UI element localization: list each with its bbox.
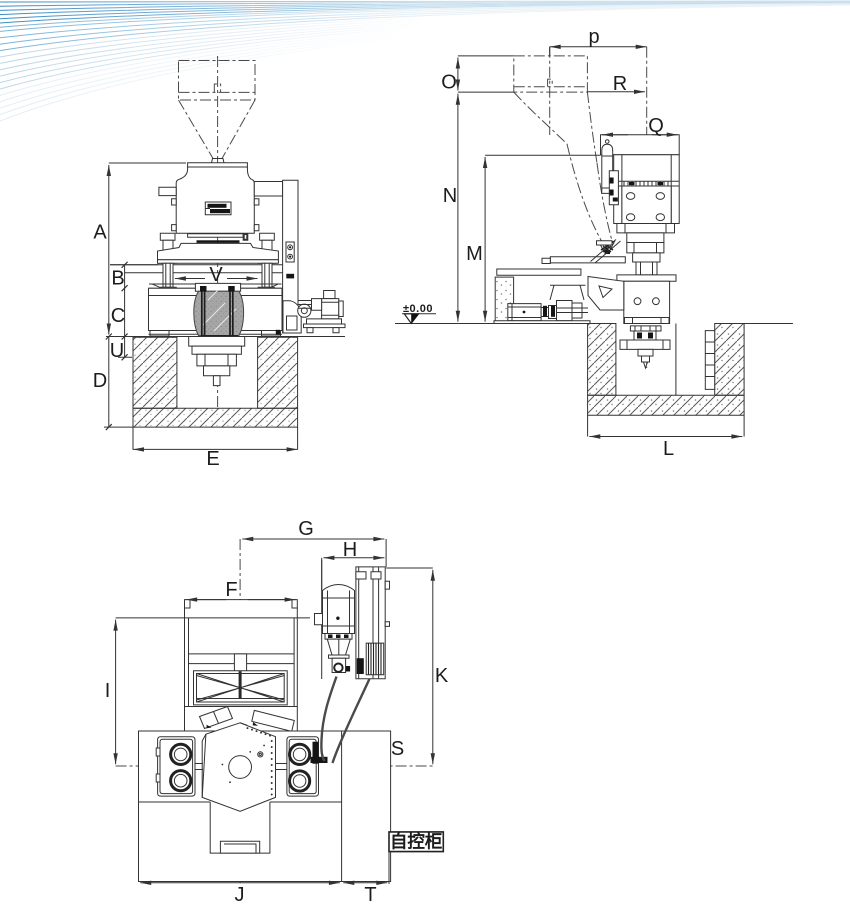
svg-text:E: E bbox=[206, 448, 219, 470]
svg-text:U: U bbox=[110, 340, 124, 362]
svg-text:R: R bbox=[613, 73, 627, 95]
svg-text:T: T bbox=[364, 884, 376, 906]
svg-text:C: C bbox=[111, 305, 125, 327]
svg-text:H: H bbox=[343, 539, 357, 561]
svg-text:M: M bbox=[466, 243, 483, 265]
svg-text:A: A bbox=[93, 222, 107, 244]
svg-text:D: D bbox=[93, 370, 107, 392]
svg-text:O: O bbox=[441, 72, 457, 94]
svg-text:V: V bbox=[209, 264, 223, 286]
svg-text:K: K bbox=[435, 665, 449, 687]
svg-text:F: F bbox=[225, 579, 237, 601]
svg-text:I: I bbox=[105, 680, 111, 702]
svg-text:自控柜: 自控柜 bbox=[390, 832, 443, 852]
svg-text:G: G bbox=[298, 518, 314, 540]
svg-text:B: B bbox=[111, 268, 124, 290]
svg-text:S: S bbox=[391, 738, 404, 760]
svg-text:L: L bbox=[663, 438, 674, 460]
svg-text:J: J bbox=[235, 884, 245, 906]
svg-text:Q: Q bbox=[648, 115, 664, 137]
svg-text:p: p bbox=[588, 26, 599, 48]
svg-text:N: N bbox=[443, 185, 457, 207]
